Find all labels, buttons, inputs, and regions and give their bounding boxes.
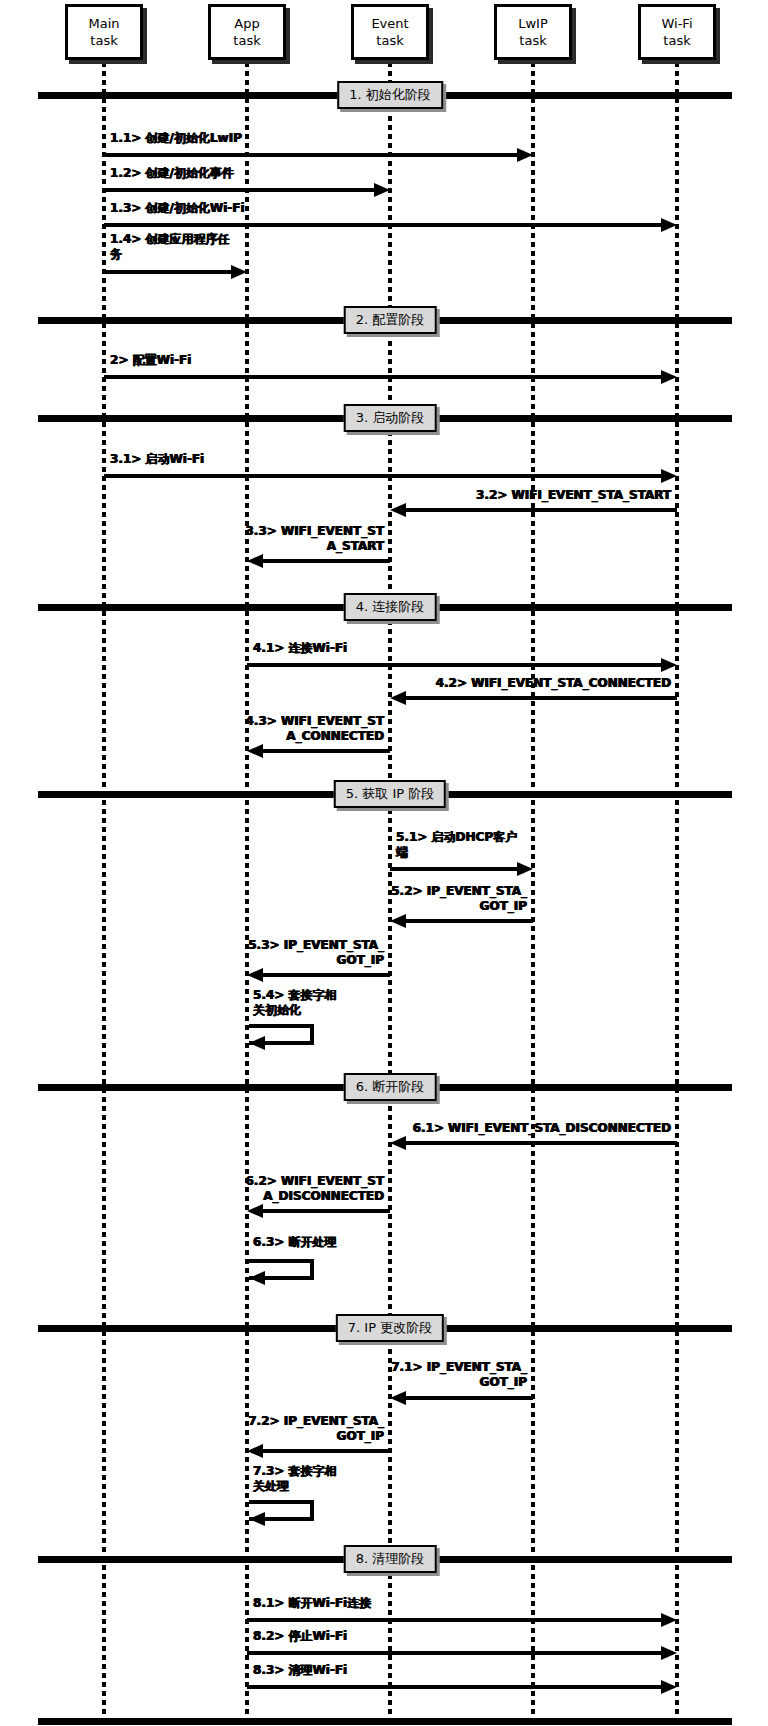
arrowhead-icon [661,1680,677,1694]
message-8.2-arrow [247,1651,663,1655]
phase-label-8: 8. 清理阶段 [344,1545,437,1573]
phase-label-text: 7. IP 更改阶段 [348,1320,432,1335]
message-4.2-arrow [404,696,677,700]
message-5.2-label-line2: GOT_IP [391,899,527,914]
message-1.3-label-line1: 1.3> 创建/初始化Wi-Fi [110,201,245,216]
phase-label-text: 5. 获取 IP 阶段 [346,786,434,801]
arrowhead-icon [661,1646,677,1660]
arrowhead-icon [661,1613,677,1627]
message-5.1-arrow [390,867,519,871]
message-5.3-label-line1: 5.3> IP_EVENT_STA_ [248,938,384,953]
task-box-event-task-line1: Event [371,15,408,32]
message-1.1-label: 1.1> 创建/初始化LwIP [110,131,242,146]
phase-label-2: 2. 配置阶段 [344,306,437,334]
message-3.1-label: 3.1> 启动Wi-Fi [110,452,204,467]
task-box-lwip-task: LwIPtask [494,4,572,60]
arrowhead-icon [390,691,406,705]
message-1.2-label-line1: 1.2> 创建/初始化事件 [110,166,234,181]
task-box-event-task: Eventtask [351,4,429,60]
message-5.1-label: 5.1> 启动DHCP客户端 [396,830,517,860]
task-box-main-task: Maintask [65,4,143,60]
message-2-arrow [104,375,663,379]
task-box-wifi-task-line1: Wi-Fi [661,15,692,32]
message-3.1-label-line1: 3.1> 启动Wi-Fi [110,452,204,467]
phase-label-7: 7. IP 更改阶段 [336,1314,444,1342]
phase-label-1: 1. 初始化阶段 [337,81,443,109]
message-3.2-label: 3.2> WIFI_EVENT_STA_START [476,488,671,503]
message-8.3-label-line1: 8.3> 清理Wi-Fi [253,1663,347,1678]
phase-label-6: 6. 断开阶段 [344,1073,437,1101]
message-1.4-arrow [104,270,233,274]
message-5.2-label-line1: 5.2> IP_EVENT_STA_ [391,884,527,899]
message-6.1-label-line1: 6.1> WIFI_EVENT_STA_DISCONNECTED [413,1121,671,1136]
phase-label-text: 8. 清理阶段 [356,1551,425,1566]
message-3.1-arrow [104,474,663,478]
message-8.3-arrow [247,1685,663,1689]
phase-label-text: 1. 初始化阶段 [349,87,431,102]
message-2-label: 2> 配置Wi-Fi [110,353,191,368]
arrowhead-icon [661,370,677,384]
message-1.3-label: 1.3> 创建/初始化Wi-Fi [110,201,245,216]
message-7.2-label: 7.2> IP_EVENT_STA_GOT_IP [248,1414,384,1444]
task-box-app-task-line2: task [233,32,260,49]
message-6.2-label-line1: 6.2> WIFI_EVENT_ST [245,1174,384,1189]
message-4.3-label-line2: A_CONNECTED [245,729,384,744]
phase-label-text: 3. 启动阶段 [356,410,425,425]
message-5.1-label-line2: 端 [396,845,517,860]
message-4.3-arrow [261,749,390,753]
arrowhead-icon [517,148,533,162]
message-8.2-label: 8.2> 停止Wi-Fi [253,1629,347,1644]
arrowhead-icon [231,265,247,279]
message-6.1-label: 6.1> WIFI_EVENT_STA_DISCONNECTED [413,1121,671,1136]
message-7.2-label-line1: 7.2> IP_EVENT_STA_ [248,1414,384,1429]
message-5.3-arrow [261,973,390,977]
message-3.2-arrow [404,508,677,512]
arrowhead-icon [249,1036,265,1050]
arrowhead-icon [390,1391,406,1405]
phase-label-text: 6. 断开阶段 [356,1079,425,1094]
message-6.2-label: 6.2> WIFI_EVENT_STA_DISCONNECTED [245,1174,384,1204]
message-7.3-label-line1: 7.3> 套接字相 [253,1464,337,1479]
message-7.2-label-line2: GOT_IP [248,1429,384,1444]
message-5.1-label-line1: 5.1> 启动DHCP客户 [396,830,517,845]
phase-label-text: 2. 配置阶段 [356,312,425,327]
sequence-diagram: 1. 初始化阶段2. 配置阶段3. 启动阶段4. 连接阶段5. 获取 IP 阶段… [0,0,768,1726]
message-8.2-label-line1: 8.2> 停止Wi-Fi [253,1629,347,1644]
arrowhead-icon [390,914,406,928]
message-7.1-arrow [404,1396,533,1400]
message-1.2-label: 1.2> 创建/初始化事件 [110,166,234,181]
arrowhead-icon [249,1271,265,1285]
message-4.1-label-line1: 4.1> 连接Wi-Fi [253,641,347,656]
arrowhead-icon [517,862,533,876]
message-1.2-arrow [104,188,376,192]
phase-label-3: 3. 启动阶段 [344,404,437,432]
message-5.3-label-line2: GOT_IP [248,953,384,968]
phase-label-5: 5. 获取 IP 阶段 [334,780,446,808]
message-6.2-arrow [261,1209,390,1213]
arrowhead-icon [249,1512,265,1526]
task-box-lwip-task-line2: task [519,32,546,49]
message-5.4-label: 5.4> 套接字相关初始化 [253,988,337,1018]
message-4.2-label: 4.2> WIFI_EVENT_STA_CONNECTED [436,676,671,691]
message-3.3-label: 3.3> WIFI_EVENT_STA_START [245,524,384,554]
message-3.3-label-line2: A_START [245,539,384,554]
message-4.3-label: 4.3> WIFI_EVENT_STA_CONNECTED [245,714,384,744]
arrowhead-icon [247,1444,263,1458]
message-4.1-arrow [247,663,663,667]
arrowhead-icon [661,658,677,672]
message-7.1-label-line1: 7.1> IP_EVENT_STA_ [391,1360,527,1375]
message-1.1-label-line1: 1.1> 创建/初始化LwIP [110,131,242,146]
message-7.1-label: 7.1> IP_EVENT_STA_GOT_IP [391,1360,527,1390]
lifeline-main-task [102,62,106,1726]
message-6.2-label-line2: A_DISCONNECTED [245,1189,384,1204]
message-5.4-label-line1: 5.4> 套接字相 [253,988,337,1003]
arrowhead-icon [247,744,263,758]
phase-label-4: 4. 连接阶段 [344,593,437,621]
message-3.3-label-line1: 3.3> WIFI_EVENT_ST [245,524,384,539]
task-box-main-task-line1: Main [88,15,119,32]
task-box-lwip-task-line1: LwIP [518,15,548,32]
message-4.2-label-line1: 4.2> WIFI_EVENT_STA_CONNECTED [436,676,671,691]
task-box-app-task-line1: App [234,15,259,32]
arrowhead-icon [247,1204,263,1218]
message-8.1-label-line1: 8.1> 断开Wi-Fi连接 [253,1596,371,1611]
phase-divider-9 [38,1718,732,1725]
message-4.1-label: 4.1> 连接Wi-Fi [253,641,347,656]
message-6.1-arrow [404,1141,677,1145]
arrowhead-icon [374,183,390,197]
message-5.4-label-line2: 关初始化 [253,1003,337,1018]
task-box-app-task: Apptask [208,4,286,60]
message-8.3-label: 8.3> 清理Wi-Fi [253,1663,347,1678]
message-7.3-label: 7.3> 套接字相关处理 [253,1464,337,1494]
arrowhead-icon [661,218,677,232]
message-8.1-label: 8.1> 断开Wi-Fi连接 [253,1596,371,1611]
message-7.3-label-line2: 关处理 [253,1479,337,1494]
task-box-wifi-task-line2: task [663,32,690,49]
task-box-main-task-line2: task [90,32,117,49]
message-5.2-label: 5.2> IP_EVENT_STA_GOT_IP [391,884,527,914]
message-1.4-label-line1: 1.4> 创建应用程序任 [110,232,230,247]
phase-label-text: 4. 连接阶段 [356,599,425,614]
arrowhead-icon [390,503,406,517]
arrowhead-icon [661,469,677,483]
arrowhead-icon [390,1136,406,1150]
message-3.3-arrow [261,559,390,563]
message-6.3-label-line1: 6.3> 断开处理 [253,1235,337,1250]
message-3.2-label-line1: 3.2> WIFI_EVENT_STA_START [476,488,671,503]
message-7.2-arrow [261,1449,390,1453]
lifeline-wifi-task [675,62,679,1726]
lifeline-app-task [245,62,249,1726]
message-1.4-label: 1.4> 创建应用程序任务 [110,232,230,262]
message-2-label-line1: 2> 配置Wi-Fi [110,353,191,368]
message-6.3-label: 6.3> 断开处理 [253,1235,337,1250]
message-8.1-arrow [247,1618,663,1622]
message-1.1-arrow [104,153,519,157]
arrowhead-icon [247,968,263,982]
lifeline-lwip-task [531,62,535,1726]
message-4.3-label-line1: 4.3> WIFI_EVENT_ST [245,714,384,729]
message-1.4-label-line2: 务 [110,247,230,262]
message-5.3-label: 5.3> IP_EVENT_STA_GOT_IP [248,938,384,968]
task-box-wifi-task: Wi-Fitask [638,4,716,60]
message-7.1-label-line2: GOT_IP [391,1375,527,1390]
task-box-event-task-line2: task [376,32,403,49]
arrowhead-icon [247,554,263,568]
message-1.3-arrow [104,223,663,227]
message-5.2-arrow [404,919,533,923]
